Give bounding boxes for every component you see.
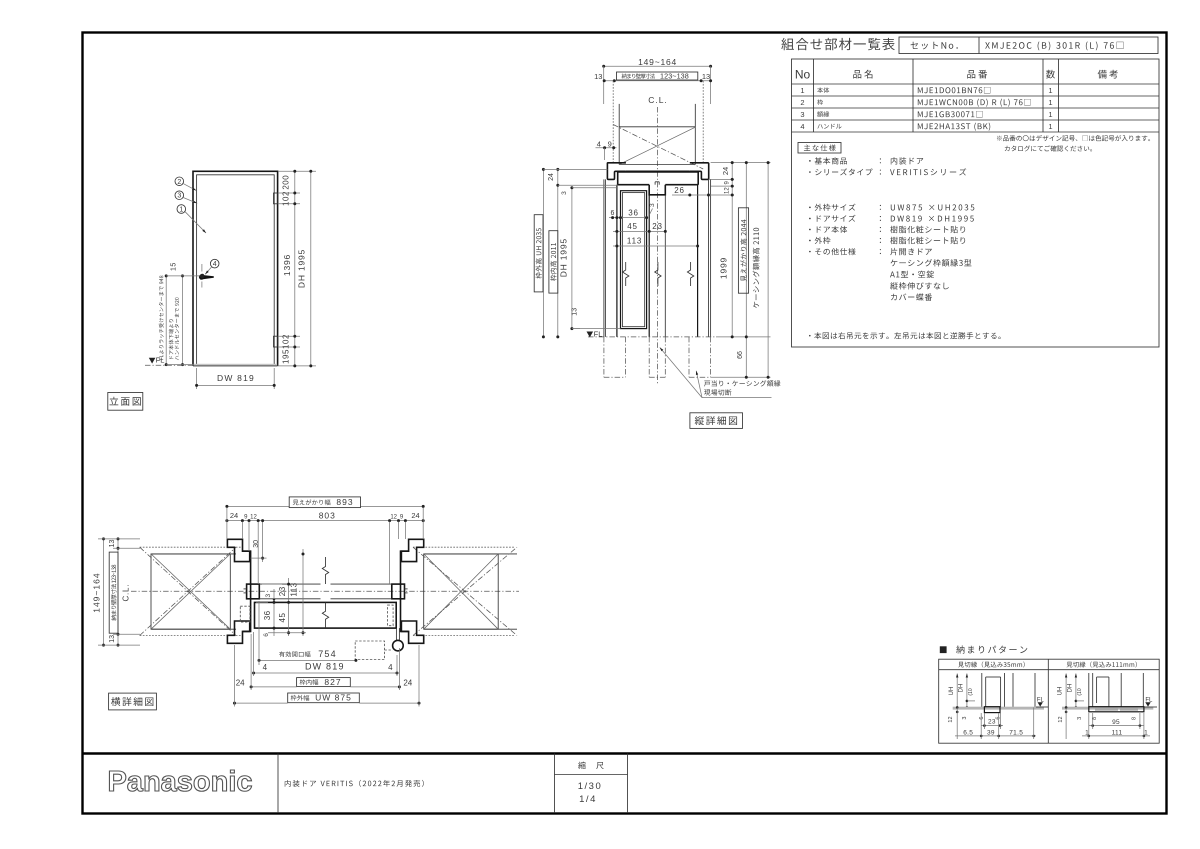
svg-text:12: 12 bbox=[948, 716, 954, 722]
svg-text:24: 24 bbox=[411, 511, 419, 520]
svg-text:1/30: 1/30 bbox=[578, 781, 603, 792]
svg-text:UH: UH bbox=[1058, 687, 1064, 696]
svg-text:3: 3 bbox=[1077, 717, 1083, 720]
svg-text:C.L.: C.L. bbox=[122, 584, 131, 602]
svg-text:1/4: 1/4 bbox=[579, 794, 597, 805]
svg-text:36: 36 bbox=[263, 610, 272, 620]
svg-text:UW 875: UW 875 bbox=[315, 693, 352, 703]
svg-text:39: 39 bbox=[987, 729, 995, 736]
svg-text:6: 6 bbox=[263, 633, 270, 637]
svg-text:(10: (10 bbox=[1077, 688, 1083, 695]
svg-text:195: 195 bbox=[282, 349, 291, 364]
svg-text:102: 102 bbox=[282, 334, 291, 349]
svg-text:FL: FL bbox=[594, 329, 603, 338]
svg-text:DW 819: DW 819 bbox=[217, 373, 255, 383]
svg-text:(10: (10 bbox=[968, 688, 974, 695]
svg-text:8: 8 bbox=[1132, 717, 1138, 720]
svg-text:827: 827 bbox=[324, 677, 341, 687]
svg-text:71.5: 71.5 bbox=[1009, 729, 1023, 736]
svg-text:DH 1995: DH 1995 bbox=[297, 249, 307, 288]
svg-text:1: 1 bbox=[1048, 122, 1052, 131]
svg-text:FL: FL bbox=[156, 356, 165, 365]
svg-text:13: 13 bbox=[702, 72, 710, 81]
svg-text:UH: UH bbox=[949, 687, 955, 696]
svg-text:Panasonic: Panasonic bbox=[107, 766, 252, 798]
svg-text:95: 95 bbox=[1112, 719, 1120, 726]
svg-text:1: 1 bbox=[179, 207, 183, 214]
svg-text:1999: 1999 bbox=[718, 257, 728, 279]
svg-text:13: 13 bbox=[571, 308, 578, 316]
svg-text:45: 45 bbox=[627, 222, 638, 231]
svg-text:3: 3 bbox=[265, 594, 272, 598]
svg-text:9: 9 bbox=[400, 514, 404, 520]
svg-text:149~164: 149~164 bbox=[91, 572, 101, 612]
svg-text:24: 24 bbox=[236, 679, 245, 688]
svg-text:6: 6 bbox=[979, 717, 985, 720]
svg-text:200: 200 bbox=[282, 175, 291, 190]
svg-text:C.L.: C.L. bbox=[648, 95, 668, 105]
svg-text:111: 111 bbox=[1112, 729, 1123, 736]
svg-text:4: 4 bbox=[800, 122, 804, 131]
svg-text:4: 4 bbox=[263, 663, 268, 672]
svg-text:1: 1 bbox=[1048, 98, 1052, 107]
svg-text:13: 13 bbox=[109, 540, 116, 548]
svg-text:3: 3 bbox=[177, 193, 181, 200]
svg-text:No: No bbox=[795, 68, 811, 82]
svg-text:13: 13 bbox=[594, 72, 602, 81]
svg-text:DH: DH bbox=[959, 684, 965, 693]
svg-text:149~164: 149~164 bbox=[638, 57, 677, 67]
svg-text:1: 1 bbox=[800, 86, 804, 95]
svg-text:23: 23 bbox=[652, 222, 663, 231]
svg-text:1: 1 bbox=[1048, 86, 1052, 95]
svg-text:24: 24 bbox=[548, 173, 555, 181]
svg-text:DW 819: DW 819 bbox=[305, 662, 345, 672]
svg-text:3: 3 bbox=[561, 191, 568, 195]
svg-text:15: 15 bbox=[171, 262, 178, 271]
svg-text:26: 26 bbox=[674, 186, 685, 195]
svg-text:6.5: 6.5 bbox=[963, 729, 973, 736]
svg-text:2: 2 bbox=[800, 98, 804, 107]
svg-text:113: 113 bbox=[289, 582, 298, 596]
svg-text:803: 803 bbox=[319, 510, 336, 520]
svg-text:DH 1995: DH 1995 bbox=[559, 238, 569, 277]
svg-text:12: 12 bbox=[390, 514, 397, 520]
svg-text:9: 9 bbox=[608, 139, 612, 148]
svg-text:893: 893 bbox=[336, 497, 353, 507]
svg-text:3: 3 bbox=[649, 203, 656, 207]
svg-text:4: 4 bbox=[388, 663, 393, 672]
svg-text:754: 754 bbox=[318, 649, 337, 659]
svg-text:12: 12 bbox=[250, 514, 257, 520]
svg-text:3: 3 bbox=[962, 717, 968, 720]
svg-text:4: 4 bbox=[597, 139, 601, 148]
svg-text:DH: DH bbox=[1068, 684, 1074, 693]
svg-text:1396: 1396 bbox=[282, 254, 292, 276]
svg-text:66: 66 bbox=[737, 351, 744, 359]
svg-text:12: 12 bbox=[724, 187, 730, 194]
svg-text:102: 102 bbox=[282, 191, 291, 206]
svg-text:123~138: 123~138 bbox=[660, 72, 689, 81]
svg-text:2: 2 bbox=[177, 179, 181, 186]
svg-text:1: 1 bbox=[1048, 110, 1052, 119]
svg-text:30: 30 bbox=[253, 540, 260, 548]
svg-text:9: 9 bbox=[724, 180, 730, 184]
svg-text:12: 12 bbox=[1058, 716, 1064, 722]
svg-text:3: 3 bbox=[800, 110, 804, 119]
svg-text:45: 45 bbox=[278, 613, 287, 623]
svg-text:4: 4 bbox=[213, 261, 217, 268]
svg-text:13: 13 bbox=[109, 635, 116, 643]
svg-text:24: 24 bbox=[230, 511, 238, 520]
svg-text:113: 113 bbox=[627, 237, 642, 246]
svg-text:24: 24 bbox=[403, 679, 412, 688]
svg-text:6: 6 bbox=[610, 210, 614, 217]
svg-text:24: 24 bbox=[721, 167, 730, 175]
svg-text:9: 9 bbox=[244, 514, 248, 520]
svg-text:36: 36 bbox=[628, 208, 639, 217]
svg-text:23: 23 bbox=[278, 586, 287, 596]
